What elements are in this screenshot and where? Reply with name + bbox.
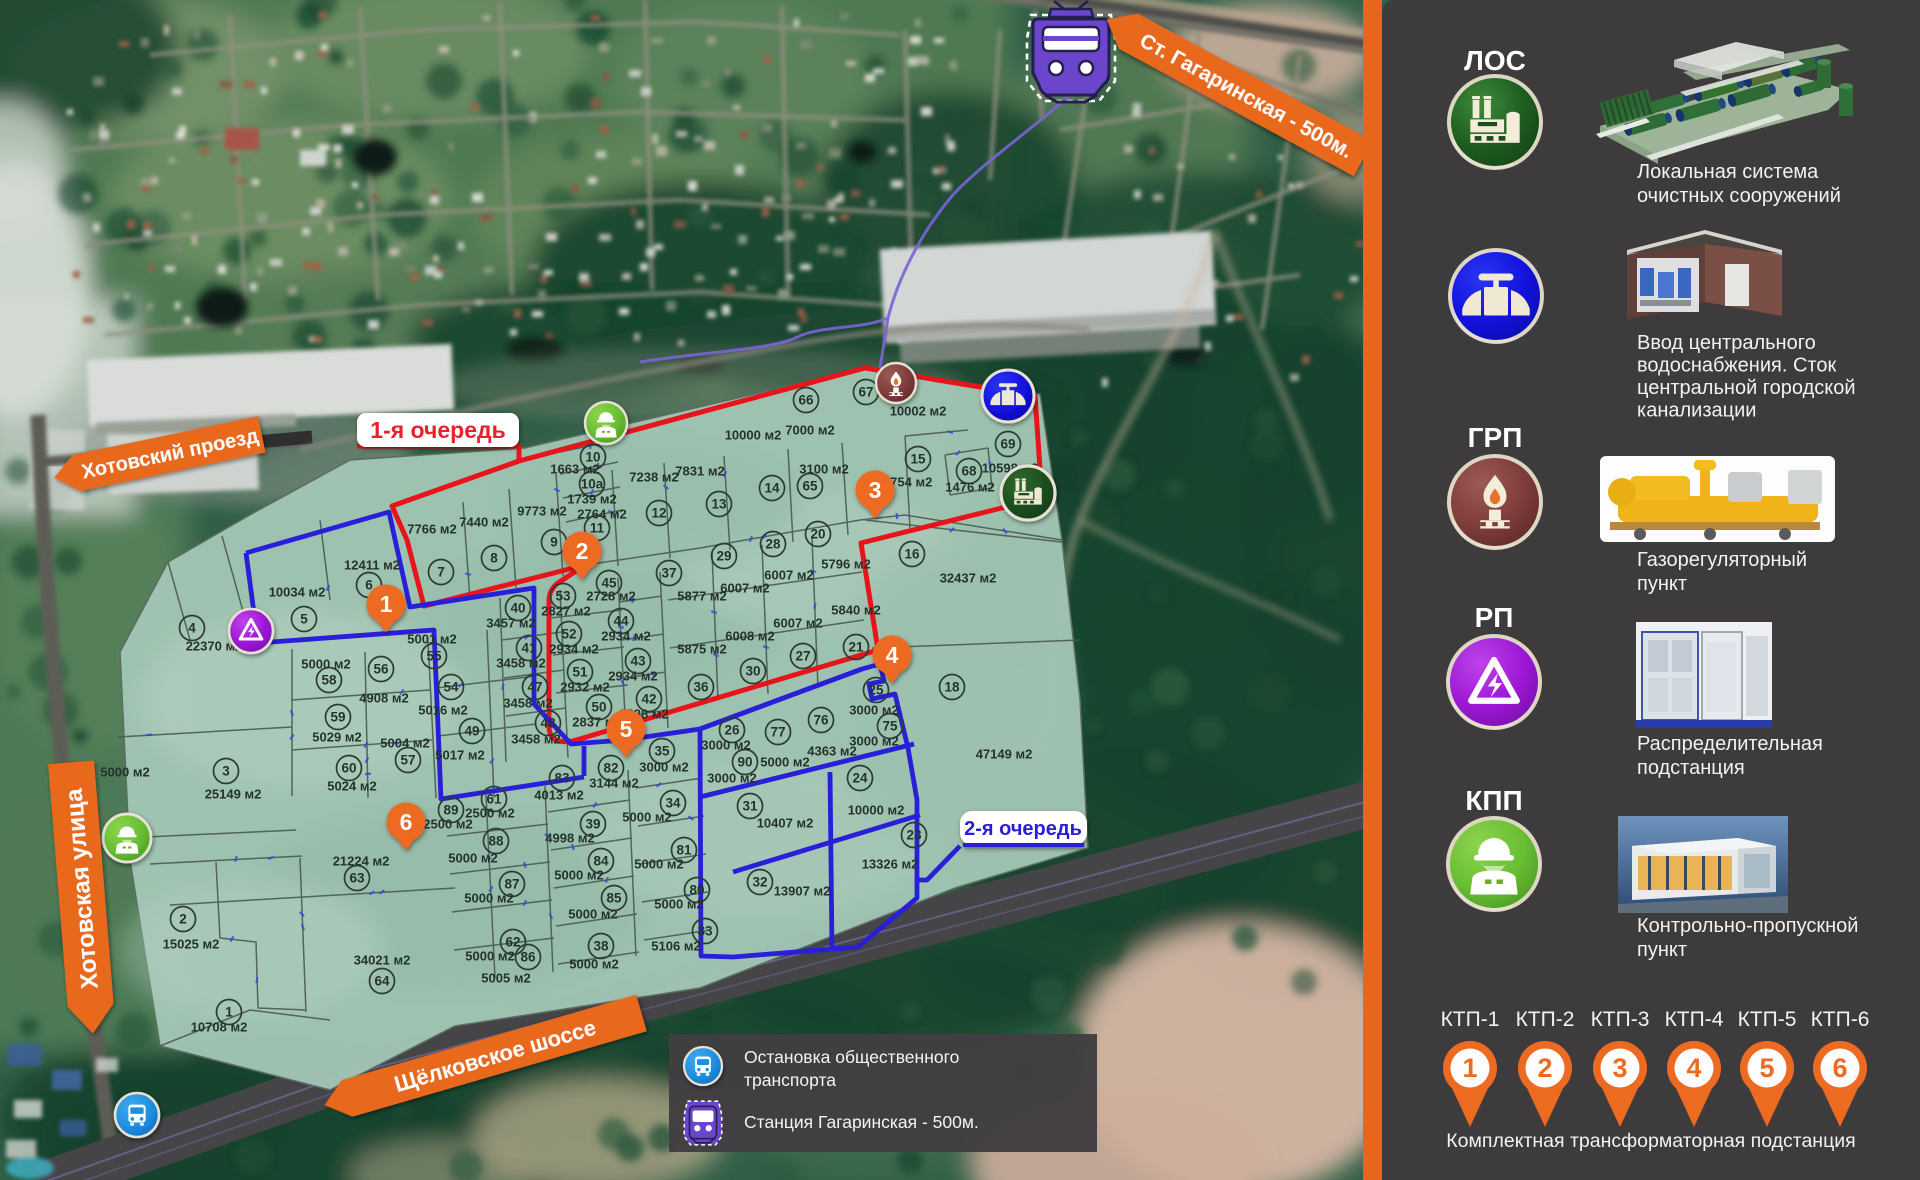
- svg-text:10000 м2: 10000 м2: [848, 803, 905, 818]
- svg-text:1476 м2: 1476 м2: [945, 480, 994, 495]
- svg-text:3144 м2: 3144 м2: [589, 776, 638, 791]
- svg-text:1-я очередь: 1-я очередь: [370, 417, 505, 443]
- svg-text:10а: 10а: [581, 477, 604, 492]
- svg-text:5796 м2: 5796 м2: [821, 557, 870, 572]
- svg-text:6: 6: [1832, 1053, 1847, 1083]
- svg-text:6007 м2: 6007 м2: [764, 568, 813, 583]
- svg-text:90: 90: [737, 755, 752, 770]
- svg-text:Контрольно-пропускной: Контрольно-пропускной: [1637, 915, 1858, 937]
- svg-text:5000 м2: 5000 м2: [554, 868, 603, 883]
- svg-text:5000 м2: 5000 м2: [634, 857, 683, 872]
- svg-text:5875 м2: 5875 м2: [677, 642, 726, 657]
- svg-text:4: 4: [188, 621, 196, 636]
- svg-text:82: 82: [603, 761, 618, 776]
- svg-text:1: 1: [225, 1005, 233, 1020]
- svg-text:Комплектная трансформаторная п: Комплектная трансформаторная подстанция: [1446, 1130, 1855, 1152]
- svg-text:5000 м2: 5000 м2: [568, 907, 617, 922]
- svg-text:Ввод центрального: Ввод центрального: [1637, 332, 1816, 354]
- svg-text:27: 27: [795, 649, 810, 664]
- svg-text:9773 м2: 9773 м2: [517, 504, 566, 519]
- svg-text:2: 2: [576, 538, 589, 564]
- svg-text:60: 60: [341, 761, 356, 776]
- svg-text:2500 м2: 2500 м2: [465, 806, 514, 821]
- svg-text:21224 м2: 21224 м2: [333, 854, 390, 869]
- svg-text:69: 69: [1000, 437, 1015, 452]
- svg-text:пункт: пункт: [1637, 573, 1687, 595]
- svg-text:89: 89: [443, 803, 458, 818]
- svg-text:52: 52: [561, 627, 576, 642]
- svg-text:85: 85: [606, 891, 622, 906]
- svg-text:54: 54: [443, 680, 459, 695]
- svg-text:33: 33: [697, 924, 713, 939]
- svg-text:ЛОС: ЛОС: [1464, 45, 1526, 76]
- svg-text:20: 20: [810, 527, 825, 542]
- svg-text:57: 57: [400, 753, 415, 768]
- svg-text:3: 3: [869, 477, 882, 503]
- svg-text:35: 35: [654, 744, 670, 759]
- svg-text:68: 68: [961, 464, 977, 479]
- svg-text:3458 м2: 3458 м2: [496, 656, 545, 671]
- svg-text:65: 65: [802, 479, 818, 494]
- svg-text:10708 м2: 10708 м2: [191, 1020, 248, 1035]
- svg-text:23: 23: [906, 828, 922, 843]
- svg-text:5029 м2: 5029 м2: [312, 730, 361, 745]
- svg-text:7238 м2: 7238 м2: [629, 470, 678, 485]
- svg-text:3000 м2: 3000 м2: [701, 738, 750, 753]
- svg-text:7831 м2: 7831 м2: [675, 464, 724, 479]
- svg-text:2827 м2: 2827 м2: [541, 604, 590, 619]
- svg-text:12: 12: [651, 506, 666, 521]
- svg-text:КТП-4: КТП-4: [1665, 1008, 1724, 1031]
- svg-text:4998 м2: 4998 м2: [545, 831, 594, 846]
- svg-text:4363 м2: 4363 м2: [807, 744, 856, 759]
- svg-text:31: 31: [742, 799, 758, 814]
- svg-text:5016 м2: 5016 м2: [418, 703, 467, 718]
- svg-text:2: 2: [179, 912, 187, 927]
- svg-text:3458 м2: 3458 м2: [503, 696, 552, 711]
- svg-text:5004 м2: 5004 м2: [380, 736, 429, 751]
- svg-text:5000 м2: 5000 м2: [301, 657, 350, 672]
- svg-text:14: 14: [764, 481, 780, 496]
- svg-text:2-я очередь: 2-я очередь: [964, 818, 1082, 840]
- svg-text:1663 м2: 1663 м2: [550, 462, 599, 477]
- svg-text:КПП: КПП: [1465, 785, 1522, 816]
- svg-text:водоснабжения. Сток: водоснабжения. Сток: [1637, 355, 1836, 377]
- svg-text:2728 м2: 2728 м2: [586, 589, 635, 604]
- svg-text:42: 42: [641, 692, 656, 707]
- svg-text:5017 м2: 5017 м2: [435, 748, 484, 763]
- svg-text:37: 37: [661, 566, 676, 581]
- svg-text:8: 8: [490, 551, 498, 566]
- svg-text:15: 15: [910, 452, 926, 467]
- svg-text:24: 24: [852, 771, 868, 786]
- svg-text:2500 м2: 2500 м2: [423, 817, 472, 832]
- svg-text:76: 76: [813, 713, 829, 728]
- svg-text:29: 29: [716, 549, 731, 564]
- svg-text:1739 м2: 1739 м2: [567, 492, 616, 507]
- svg-text:11: 11: [590, 521, 605, 536]
- svg-text:3000 м2: 3000 м2: [707, 771, 756, 786]
- svg-text:13907 м2: 13907 м2: [774, 884, 831, 899]
- svg-text:10034 м2: 10034 м2: [269, 585, 326, 600]
- svg-text:КТП-1: КТП-1: [1441, 1008, 1500, 1031]
- svg-text:пункт: пункт: [1637, 939, 1687, 961]
- svg-text:80: 80: [689, 883, 704, 898]
- svg-text:Станция Гагаринская - 500м.: Станция Гагаринская - 500м.: [744, 1112, 979, 1132]
- svg-text:4: 4: [886, 642, 899, 668]
- svg-text:13326 м2: 13326 м2: [862, 857, 919, 872]
- svg-text:51: 51: [572, 665, 588, 680]
- svg-text:5000 м2: 5000 м2: [465, 949, 514, 964]
- svg-text:РП: РП: [1475, 602, 1514, 633]
- svg-text:50: 50: [591, 700, 606, 715]
- svg-text:очистных сооружений: очистных сооружений: [1637, 185, 1841, 207]
- svg-text:5: 5: [300, 612, 308, 627]
- svg-text:3: 3: [1612, 1053, 1627, 1083]
- svg-text:81: 81: [676, 843, 692, 858]
- svg-text:10407 м2: 10407 м2: [757, 816, 814, 831]
- svg-text:Остановка общественного: Остановка общественного: [744, 1047, 959, 1067]
- svg-text:66: 66: [798, 393, 814, 408]
- svg-text:84: 84: [593, 854, 609, 869]
- svg-text:3457 м2: 3457 м2: [486, 616, 535, 631]
- svg-text:9: 9: [550, 535, 558, 550]
- svg-text:40: 40: [510, 601, 525, 616]
- svg-text:12411 м2: 12411 м2: [344, 558, 400, 573]
- svg-text:87: 87: [504, 877, 519, 892]
- svg-text:36: 36: [693, 680, 709, 695]
- svg-text:34021 м2: 34021 м2: [354, 953, 411, 968]
- svg-text:49: 49: [464, 724, 479, 739]
- svg-text:2: 2: [1537, 1053, 1552, 1083]
- svg-text:62: 62: [505, 935, 520, 950]
- svg-text:5: 5: [620, 716, 633, 742]
- svg-text:КТП-2: КТП-2: [1516, 1008, 1575, 1031]
- svg-text:53: 53: [555, 589, 571, 604]
- svg-text:4013 м2: 4013 м2: [534, 788, 583, 803]
- svg-text:4908 м2: 4908 м2: [359, 691, 408, 706]
- svg-text:2932 м2: 2932 м2: [560, 680, 609, 695]
- svg-text:5000 м2: 5000 м2: [654, 897, 703, 912]
- svg-text:канализации: канализации: [1637, 400, 1756, 422]
- svg-text:КТП-5: КТП-5: [1738, 1008, 1797, 1031]
- svg-text:16: 16: [904, 547, 920, 562]
- svg-text:13: 13: [711, 497, 727, 512]
- svg-text:5000 м2: 5000 м2: [100, 765, 149, 780]
- svg-text:28: 28: [765, 537, 781, 552]
- svg-text:63: 63: [349, 871, 365, 886]
- svg-text:26: 26: [724, 723, 740, 738]
- svg-text:32437 м2: 32437 м2: [940, 571, 997, 586]
- svg-text:Локальная система: Локальная система: [1637, 161, 1819, 183]
- svg-text:3100 м2: 3100 м2: [799, 462, 848, 477]
- svg-text:5877 м2: 5877 м2: [677, 589, 726, 604]
- svg-text:КТП-3: КТП-3: [1591, 1008, 1650, 1031]
- svg-text:77: 77: [770, 725, 785, 740]
- svg-text:58: 58: [321, 673, 337, 688]
- svg-text:5001 м2: 5001 м2: [407, 632, 456, 647]
- svg-text:56: 56: [373, 662, 389, 677]
- svg-text:64: 64: [374, 974, 390, 989]
- svg-text:5840 м2: 5840 м2: [831, 603, 880, 618]
- svg-text:2764 м2: 2764 м2: [577, 507, 626, 522]
- svg-text:подстанция: подстанция: [1637, 757, 1745, 779]
- svg-text:3000 м2: 3000 м2: [639, 760, 688, 775]
- svg-text:43: 43: [630, 654, 646, 669]
- svg-text:6: 6: [365, 578, 373, 593]
- svg-text:3000 м2: 3000 м2: [849, 703, 898, 718]
- svg-text:ГРП: ГРП: [1468, 422, 1523, 453]
- svg-text:47: 47: [527, 680, 542, 695]
- svg-text:3458 м2: 3458 м2: [511, 732, 560, 747]
- svg-text:5005 м2: 5005 м2: [481, 971, 530, 986]
- svg-text:67: 67: [858, 385, 873, 400]
- svg-text:48: 48: [540, 716, 556, 731]
- svg-text:44: 44: [613, 614, 629, 629]
- svg-text:6008 м2: 6008 м2: [725, 629, 774, 644]
- svg-text:2934 м2: 2934 м2: [549, 642, 598, 657]
- svg-text:5000 м2: 5000 м2: [569, 957, 618, 972]
- svg-text:5000 м2: 5000 м2: [448, 851, 497, 866]
- svg-text:61: 61: [486, 792, 502, 807]
- svg-text:7: 7: [437, 565, 445, 580]
- svg-text:39: 39: [585, 817, 600, 832]
- svg-text:21: 21: [848, 640, 864, 655]
- svg-text:47149 м2: 47149 м2: [976, 747, 1033, 762]
- svg-text:34: 34: [665, 796, 681, 811]
- svg-text:41: 41: [521, 641, 537, 656]
- svg-text:5000 м2: 5000 м2: [622, 810, 671, 825]
- svg-text:55: 55: [426, 649, 442, 664]
- svg-text:7000 м2: 7000 м2: [785, 423, 834, 438]
- svg-text:центральной городской: центральной городской: [1637, 377, 1856, 399]
- svg-text:5106 м2: 5106 м2: [651, 939, 700, 954]
- svg-text:10000 м2: 10000 м2: [725, 428, 782, 443]
- svg-text:5024 м2: 5024 м2: [327, 779, 376, 794]
- svg-text:5: 5: [1759, 1053, 1774, 1083]
- svg-text:59: 59: [330, 710, 345, 725]
- svg-text:5000 м2: 5000 м2: [760, 755, 809, 770]
- svg-text:25149 м2: 25149 м2: [205, 787, 262, 802]
- svg-text:2934 м2: 2934 м2: [601, 629, 650, 644]
- svg-text:25: 25: [868, 683, 884, 698]
- svg-text:4: 4: [1686, 1053, 1701, 1083]
- svg-text:3000 м2: 3000 м2: [849, 734, 898, 749]
- svg-text:1: 1: [1462, 1053, 1477, 1083]
- svg-text:Распределительная: Распределительная: [1637, 733, 1823, 755]
- svg-text:30: 30: [745, 664, 760, 679]
- svg-text:75: 75: [882, 719, 898, 734]
- svg-text:15025 м2: 15025 м2: [163, 937, 220, 952]
- svg-text:Газорегуляторный: Газорегуляторный: [1637, 549, 1807, 571]
- svg-text:3: 3: [222, 764, 230, 779]
- svg-text:2934 м2: 2934 м2: [608, 669, 657, 684]
- svg-text:транспорта: транспорта: [744, 1070, 836, 1090]
- svg-text:7766 м2: 7766 м2: [407, 522, 456, 537]
- svg-text:38: 38: [593, 939, 609, 954]
- svg-text:7440 м2: 7440 м2: [459, 515, 508, 530]
- svg-text:1: 1: [380, 591, 393, 617]
- svg-text:88: 88: [488, 834, 504, 849]
- svg-text:КТП-6: КТП-6: [1811, 1008, 1870, 1031]
- svg-text:6007 м2: 6007 м2: [773, 616, 822, 631]
- svg-text:32: 32: [752, 875, 767, 890]
- svg-text:6007 м2: 6007 м2: [720, 581, 769, 596]
- svg-text:6: 6: [400, 809, 413, 835]
- svg-text:18: 18: [944, 680, 960, 695]
- svg-text:10002 м2: 10002 м2: [890, 404, 947, 419]
- svg-text:5000 м2: 5000 м2: [464, 891, 513, 906]
- svg-text:83: 83: [554, 771, 570, 786]
- svg-text:86: 86: [520, 950, 536, 965]
